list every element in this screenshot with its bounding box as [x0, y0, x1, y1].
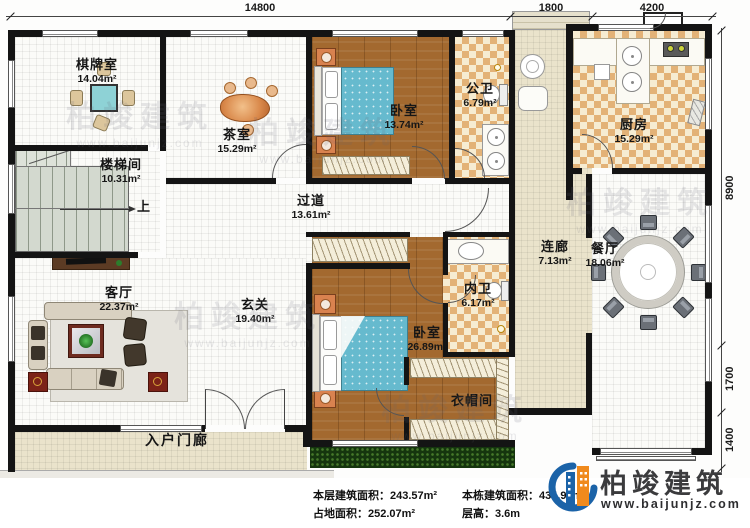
tea-stool [266, 85, 278, 97]
dining-chair [691, 264, 706, 281]
wall [8, 252, 138, 258]
wall [572, 168, 582, 174]
room-label-hallway: 过道 13.61m² [282, 194, 340, 221]
dimension-line-top [6, 16, 716, 17]
dim-top-1: 14800 [10, 2, 510, 14]
window [8, 296, 15, 362]
armchair [123, 343, 147, 367]
side-table-inlay [153, 377, 162, 386]
window [705, 298, 712, 382]
wall [586, 333, 592, 415]
wall [509, 190, 515, 357]
wall [303, 425, 312, 447]
nightstand [316, 136, 336, 154]
room-label-foyer: 玄关 19.40m² [222, 298, 288, 325]
room-label-chess: 棋牌室 14.04m² [55, 58, 139, 85]
nightstand [314, 294, 336, 314]
wall [509, 30, 515, 190]
window [190, 30, 248, 37]
window [8, 60, 15, 108]
tea-table [220, 94, 270, 122]
room-label-cloak: 衣帽间 [434, 394, 510, 409]
wall [160, 30, 166, 151]
armchair [123, 317, 148, 342]
stat-label: 本栋建筑面积： [462, 490, 539, 502]
brand-name: 柏竣建筑 [600, 462, 728, 501]
nightstand [316, 48, 336, 66]
bed-headboard [312, 314, 320, 392]
window [598, 24, 654, 31]
closet-rack [410, 419, 497, 440]
floor-drain [497, 325, 505, 333]
dim-right-2: 1700 [724, 345, 736, 412]
wall [443, 237, 448, 275]
bed-headboard [314, 66, 322, 136]
window [332, 30, 418, 37]
room-label-living: 客厅 22.37m² [88, 286, 150, 313]
hall-closet [312, 238, 408, 262]
plant [79, 334, 93, 348]
window [705, 205, 712, 283]
wall [509, 408, 592, 415]
dim-right-1: 8900 [724, 30, 736, 345]
room-label-ensuite: 内卫 6.17m² [450, 282, 506, 309]
brand-logo-svg [548, 460, 598, 516]
wall [8, 145, 148, 151]
stove-burner [678, 45, 685, 52]
brand-website: www.baijunjz.com [601, 497, 741, 511]
water-heater [518, 86, 548, 111]
sofa-cushion [31, 326, 45, 340]
vanity-sink [458, 242, 484, 260]
tea-stool [245, 77, 257, 89]
room-label-public-bath: 公卫 6.79m² [456, 82, 504, 109]
bay-window-sill [596, 456, 696, 461]
wall [445, 178, 515, 184]
kitchen-sink [622, 72, 642, 92]
stove-burner [667, 45, 674, 52]
room-label-bedroom1: 卧室 13.74m² [372, 104, 436, 131]
wall [404, 357, 409, 385]
wall [306, 30, 312, 184]
wall [8, 425, 15, 472]
dim-right-3: 1400 [724, 412, 736, 468]
sink [487, 128, 505, 146]
room-label-stair: 楼梯间 10.31m² [92, 158, 150, 185]
stat-label: 层高： [462, 508, 495, 520]
kitchen-island [594, 64, 610, 80]
wall [612, 168, 712, 174]
stat-height: 层高：3.6m [462, 505, 520, 521]
room-label-porch: 入户门廊 [122, 432, 232, 448]
window [120, 425, 202, 432]
wall [443, 232, 515, 237]
stairs-arrow [60, 209, 132, 210]
stat-value: 252.07m² [368, 508, 415, 520]
wardrobe [322, 156, 410, 175]
tv-plant [116, 260, 122, 266]
washing-machine-drum [526, 60, 539, 73]
pillow [325, 103, 338, 130]
window [462, 30, 504, 37]
pillow [323, 320, 337, 350]
window [8, 164, 15, 214]
wall [306, 263, 410, 269]
wall [586, 174, 592, 238]
side-table-inlay [33, 377, 42, 386]
window [332, 440, 418, 447]
light-fixture [494, 64, 501, 71]
floor-plan: 棋牌室 14.04m² 茶室 15.29m² 卧室 13.74m² 公卫 6.7… [0, 0, 750, 528]
brand-logo-icon [548, 460, 598, 516]
stairs-up-label: 上 [134, 200, 154, 215]
kitchen-sink [622, 46, 642, 66]
dim-top-2: 1800 [510, 2, 592, 14]
stat-value: 3.6m [495, 508, 520, 520]
sink [487, 152, 505, 170]
grass-strip [310, 447, 515, 468]
pillow [325, 71, 338, 98]
dim-top-3: 4200 [592, 2, 712, 14]
stat-label: 占地面积： [313, 508, 368, 520]
sofa-cushion [99, 369, 118, 388]
room-label-tea: 茶室 15.29m² [198, 128, 276, 155]
mahjong-chair [70, 90, 83, 106]
wall [306, 178, 412, 184]
stat-land-area: 占地面积：252.07m² [313, 505, 415, 521]
window [705, 58, 712, 130]
closet-rack [410, 358, 497, 378]
dining-chair [640, 215, 657, 230]
mahjong-chair [122, 90, 135, 106]
room-label-dining: 餐厅 18.06m² [576, 242, 634, 269]
bay-window [600, 448, 692, 455]
stat-value: 243.57m² [390, 490, 437, 502]
dining-chair [640, 315, 657, 330]
dimension-line-right [721, 28, 722, 472]
window [42, 30, 98, 37]
stat-floor-area: 本层建筑面积：243.57m² [313, 487, 437, 503]
wall [306, 232, 410, 237]
pillow [323, 355, 337, 385]
tea-stool [224, 82, 236, 94]
wall [166, 178, 276, 184]
chess-room-floor [15, 37, 160, 145]
dining-table-center [640, 264, 656, 280]
mahjong-table [90, 84, 118, 112]
wall [306, 263, 312, 447]
room-label-corridor: 连廊 7.13m² [528, 240, 582, 267]
room-label-bedroom2: 卧室 26.89m² [392, 326, 462, 353]
room-label-kitchen: 厨房 15.29m² [606, 118, 662, 145]
stat-label: 本层建筑面积： [313, 490, 390, 502]
sofa-cushion [31, 346, 45, 360]
